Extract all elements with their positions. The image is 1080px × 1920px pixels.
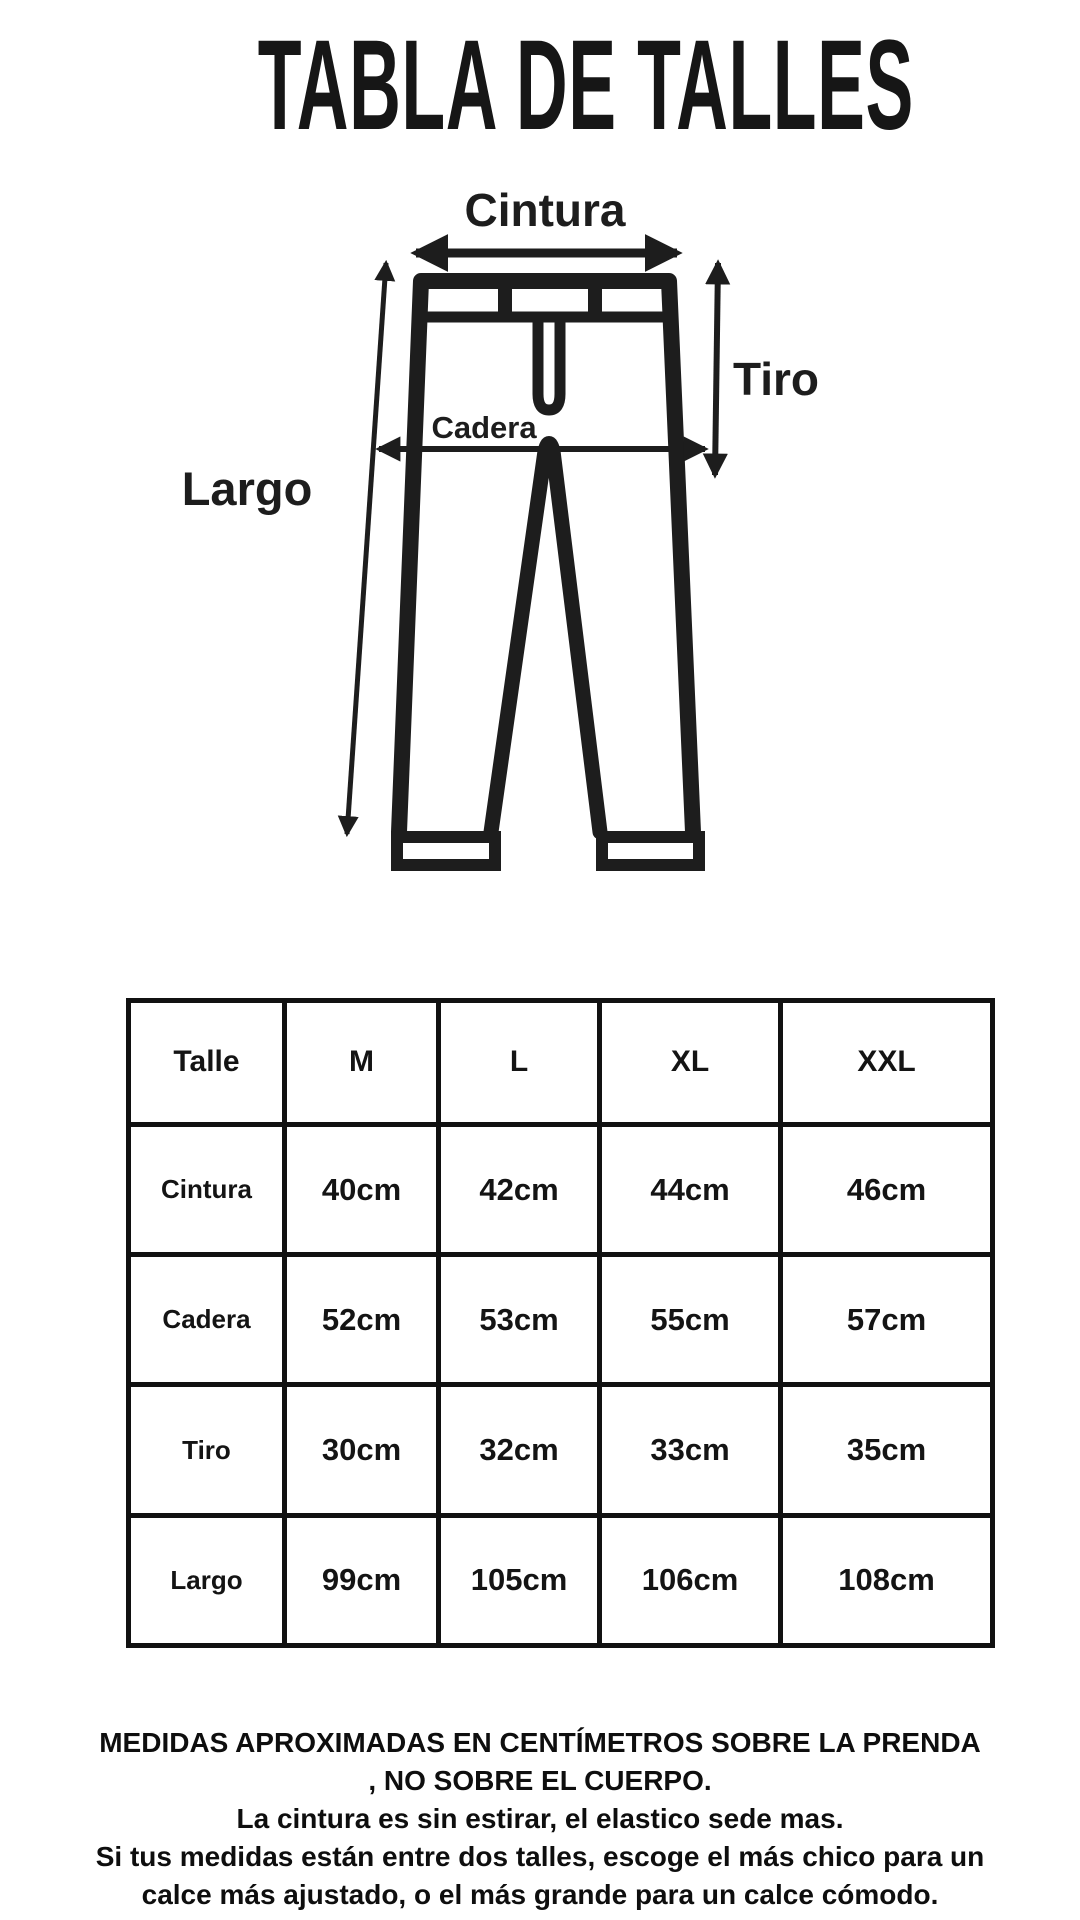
pants-outline-drawing xyxy=(0,0,1080,1000)
cadera-label: Cadera xyxy=(431,410,536,446)
pants-measurement-diagram: Cintura Tiro Cadera Largo xyxy=(0,0,1080,1000)
note-line-5: calce más ajustado, o el más grande para… xyxy=(0,1876,1080,1914)
table-row-tiro: Tiro 30cm 32cm 33cm 35cm xyxy=(129,1385,993,1515)
cintura-xxl: 46cm xyxy=(781,1124,993,1254)
table-row-largo: Largo 99cm 105cm 106cm 108cm xyxy=(129,1515,993,1645)
col-header-talle: Talle xyxy=(129,1001,285,1125)
size-table: Talle M L XL XXL Cintura 40cm 42cm 44cm … xyxy=(126,998,995,1648)
note-line-3: La cintura es sin estirar, el elastico s… xyxy=(0,1800,1080,1838)
table-row-cadera: Cadera 52cm 53cm 55cm 57cm xyxy=(129,1255,993,1385)
largo-m: 99cm xyxy=(285,1515,439,1645)
largo-label: Largo xyxy=(182,461,313,516)
cintura-m: 40cm xyxy=(285,1124,439,1254)
pants-inner-legs xyxy=(491,444,600,833)
tiro-arrow xyxy=(715,263,718,475)
row-label-cadera: Cadera xyxy=(129,1255,285,1385)
size-chart-page: { "title": "TABLA DE TALLES", "diagram":… xyxy=(0,0,1080,1920)
table-header-row: Talle M L XL XXL xyxy=(129,1001,993,1125)
cintura-xl: 44cm xyxy=(600,1124,781,1254)
row-label-cintura: Cintura xyxy=(129,1124,285,1254)
cadera-xxl: 57cm xyxy=(781,1255,993,1385)
largo-l: 105cm xyxy=(439,1515,600,1645)
col-header-xxl: XXL xyxy=(781,1001,993,1125)
tiro-xl: 33cm xyxy=(600,1385,781,1515)
pants-right-cuff xyxy=(602,837,699,865)
table-row-cintura: Cintura 40cm 42cm 44cm 46cm xyxy=(129,1124,993,1254)
largo-xxl: 108cm xyxy=(781,1515,993,1645)
largo-arrow xyxy=(347,263,386,834)
pants-left-cuff xyxy=(397,837,495,865)
pants-icon xyxy=(397,281,699,865)
note-line-4: Si tus medidas están entre dos talles, e… xyxy=(0,1838,1080,1876)
tiro-l: 32cm xyxy=(439,1385,600,1515)
cintura-label: Cintura xyxy=(465,183,626,237)
cintura-l: 42cm xyxy=(439,1124,600,1254)
cadera-m: 52cm xyxy=(285,1255,439,1385)
col-header-m: M xyxy=(285,1001,439,1125)
tiro-xxl: 35cm xyxy=(781,1385,993,1515)
row-label-tiro: Tiro xyxy=(129,1385,285,1515)
cadera-xl: 55cm xyxy=(600,1255,781,1385)
note-line-2: , NO SOBRE EL CUERPO. xyxy=(0,1762,1080,1800)
pants-fly xyxy=(538,317,560,410)
tiro-m: 30cm xyxy=(285,1385,439,1515)
pants-outer-silhouette xyxy=(399,281,693,832)
row-label-largo: Largo xyxy=(129,1515,285,1645)
col-header-xl: XL xyxy=(600,1001,781,1125)
note-line-1: MEDIDAS APROXIMADAS EN CENTÍMETROS SOBRE… xyxy=(0,1724,1080,1762)
measurement-notes: MEDIDAS APROXIMADAS EN CENTÍMETROS SOBRE… xyxy=(0,1724,1080,1914)
cadera-l: 53cm xyxy=(439,1255,600,1385)
largo-xl: 106cm xyxy=(600,1515,781,1645)
tiro-label: Tiro xyxy=(733,352,819,406)
col-header-l: L xyxy=(439,1001,600,1125)
